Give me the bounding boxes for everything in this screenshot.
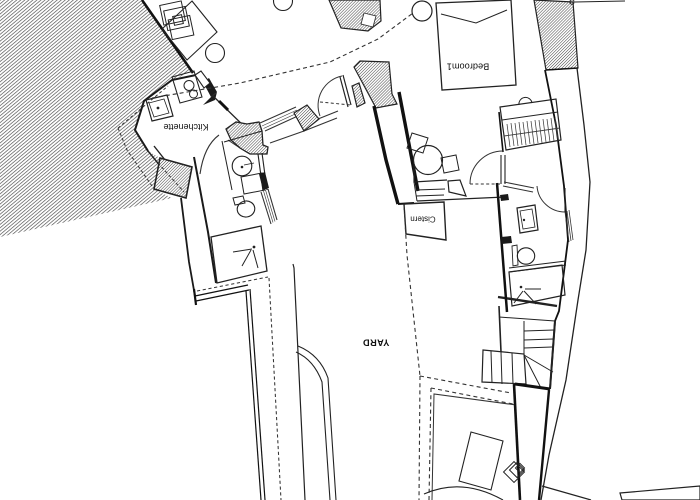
svg-text:Kitchenette: Kitchenette: [163, 122, 208, 132]
svg-text:YARD: YARD: [363, 338, 390, 348]
svg-text:Cistern: Cistern: [410, 215, 435, 224]
svg-text:Bedroom1: Bedroom1: [447, 62, 489, 72]
